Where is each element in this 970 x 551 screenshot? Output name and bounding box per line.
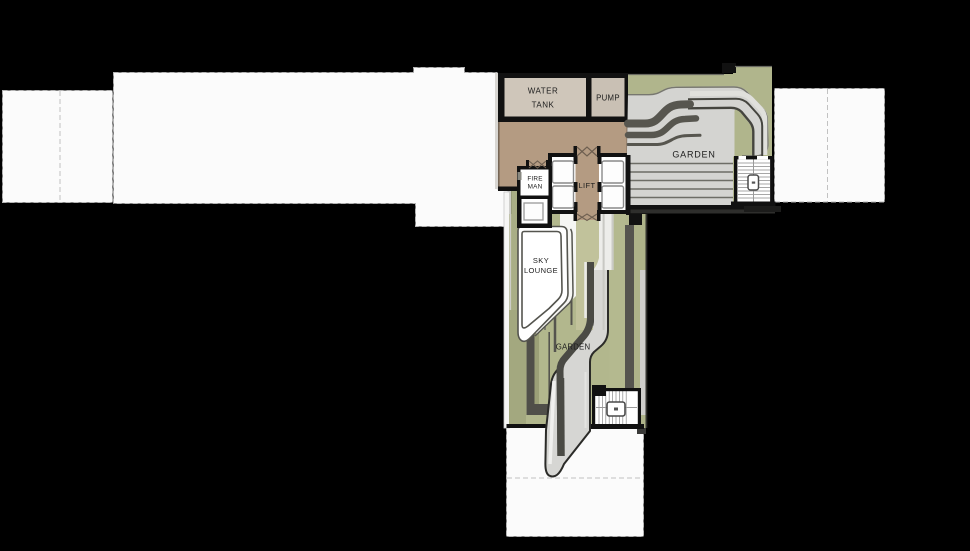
- svg-text:LIFT: LIFT: [578, 181, 595, 190]
- svg-text:SKY: SKY: [533, 256, 549, 265]
- svg-text:FIRE: FIRE: [527, 176, 542, 183]
- svg-text:MAN: MAN: [528, 184, 543, 191]
- svg-text:GARDEN: GARDEN: [672, 150, 715, 160]
- svg-text:PUMP: PUMP: [596, 94, 620, 103]
- svg-text:LOUNGE: LOUNGE: [524, 266, 558, 275]
- svg-text:WATER: WATER: [528, 87, 559, 96]
- svg-text:GARDEN: GARDEN: [556, 343, 591, 352]
- svg-text:TANK: TANK: [532, 101, 555, 110]
